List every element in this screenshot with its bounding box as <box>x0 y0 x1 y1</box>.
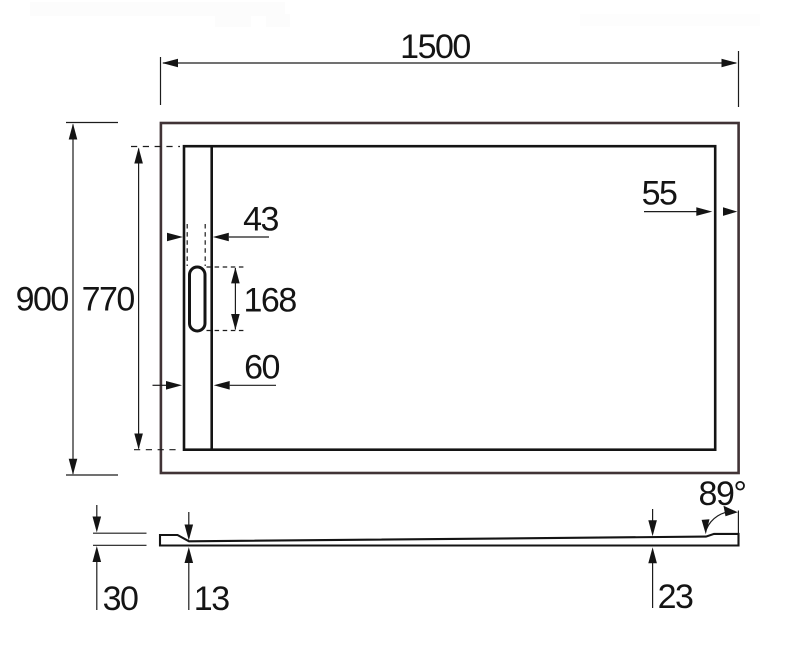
svg-text:60: 60 <box>244 349 279 387</box>
svg-text:30: 30 <box>103 580 138 618</box>
svg-text:770: 770 <box>82 281 135 319</box>
svg-text:168: 168 <box>244 282 297 320</box>
svg-text:55: 55 <box>642 175 677 213</box>
svg-text:1500: 1500 <box>400 28 470 66</box>
svg-text:23: 23 <box>658 578 693 616</box>
svg-text:900: 900 <box>16 281 69 319</box>
svg-text:43: 43 <box>243 201 278 239</box>
svg-text:13: 13 <box>194 580 229 618</box>
svg-text:89°: 89° <box>699 475 746 513</box>
